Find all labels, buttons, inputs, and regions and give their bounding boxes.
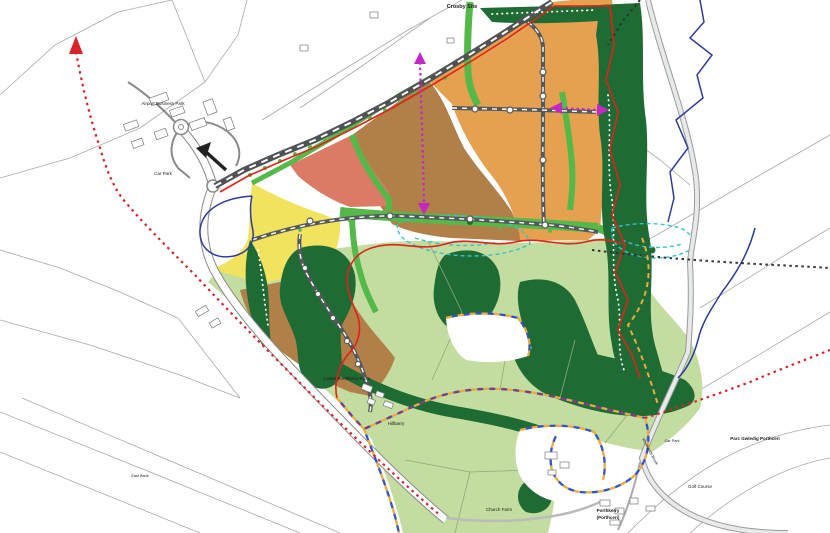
label-car-park-east: Car Park xyxy=(665,439,680,443)
label-east-bank: East Bank xyxy=(131,474,148,478)
label-lower-porthkerry-farm: Lower Porthkerry Farm xyxy=(324,376,370,381)
label-church-farm: Church Farm xyxy=(486,507,513,512)
label-porthkerry: Porthkerry xyxy=(597,508,620,513)
label-hillbarry: Hillbarry xyxy=(388,421,405,426)
connection-arrow-icon xyxy=(414,52,426,64)
label-parc-gwledig: Parc Gwledig Porthceri xyxy=(730,436,780,441)
footpath-arrow-icon xyxy=(69,36,83,54)
label-car-park-west: Car Park xyxy=(154,171,173,176)
masterplan-map: Crosby Site Airport Business Park Car Pa… xyxy=(0,0,830,533)
label-crosby-site: Crosby Site xyxy=(447,4,478,10)
label-porthceri: (Porthceri) xyxy=(597,515,620,520)
label-golf-course: Golf Course xyxy=(688,484,713,489)
label-airport-business-park: Airport Business Park xyxy=(141,101,185,106)
